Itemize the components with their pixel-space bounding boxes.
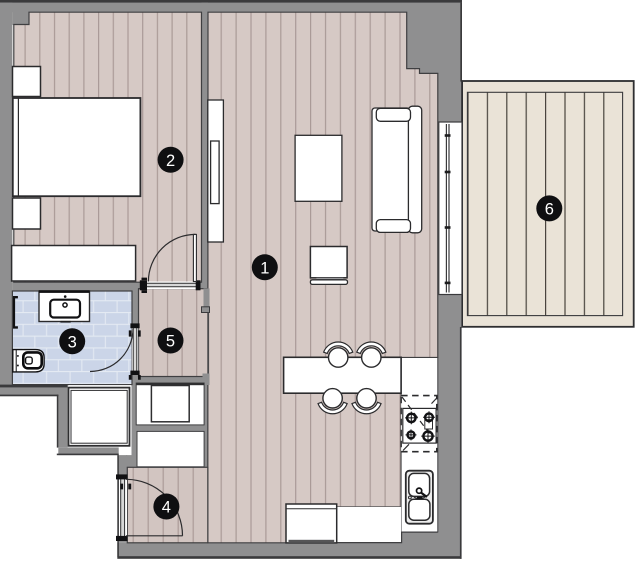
svg-text:6: 6 [545, 201, 554, 219]
svg-text:3: 3 [68, 334, 77, 352]
svg-text:2: 2 [166, 152, 175, 170]
svg-text:5: 5 [166, 333, 175, 351]
svg-text:1: 1 [260, 260, 269, 278]
svg-text:4: 4 [162, 499, 171, 517]
